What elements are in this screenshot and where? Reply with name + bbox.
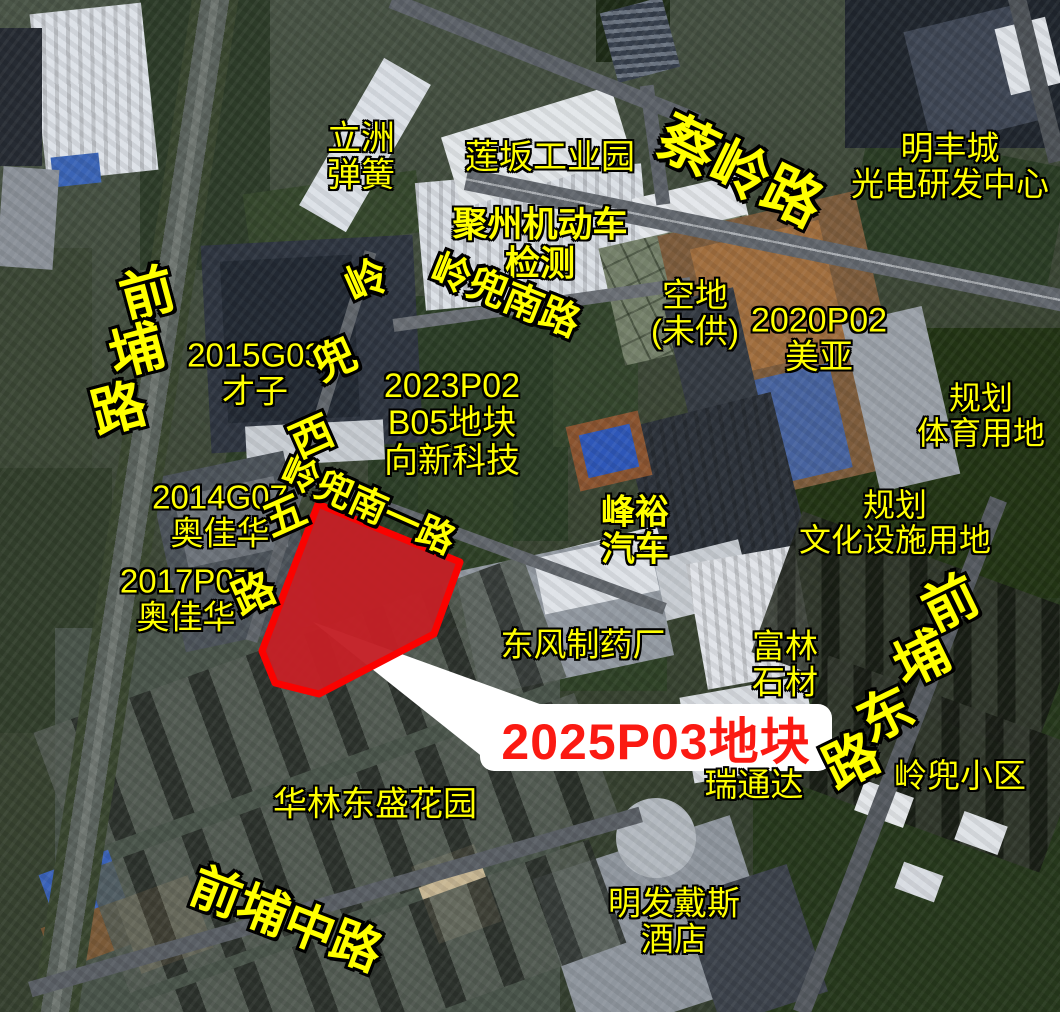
label-planned-sports-land: 规划体育用地 — [917, 381, 1045, 451]
label-road-qianpu-char-2: 路 — [85, 374, 153, 445]
label-2020p02-meiya: 2020P02美亚 — [751, 303, 887, 378]
label-ruitongda: 瑞通达 — [705, 767, 804, 803]
label-lingdou-residential: 岭兜小区 — [894, 758, 1026, 794]
label-road-qianpu-middle: 前埔中路 — [183, 858, 389, 981]
label-2017p07-aojiahua: 2017P07奥佳华 — [120, 564, 252, 637]
label-kongdi-weigong: 空地(未供) — [651, 278, 739, 351]
label-lizhou-tanhuang: 立洲弹簧 — [327, 121, 395, 196]
label-2015g03-caizi: 2015G03才子 — [187, 338, 323, 411]
label-road-lingdou-west-5th-char-0: 岭 — [338, 251, 395, 310]
label-mingfengcheng-rd-center: 明丰城光电研发中心 — [851, 131, 1049, 204]
label-planned-cultural-facility-land: 规划文化设施用地 — [799, 488, 991, 558]
satellite-map: 2025P03地块 立洲弹簧莲坂工业园明丰城光电研发中心聚州机动车检测空地(未供… — [0, 0, 1060, 1012]
label-mingfa-days-hotel: 明发戴斯酒店 — [608, 886, 740, 959]
label-hualin-dongsheng-garden: 华林东盛花园 — [273, 786, 477, 823]
label-road-cailing: 蔡岭路 — [648, 105, 832, 239]
label-fengyu-auto: 峰裕汽车 — [601, 495, 669, 570]
label-2023p02-b05-xiangxin: 2023P02B05地块向新科技 — [384, 368, 520, 480]
label-dongfeng-pharma: 东风制药厂 — [501, 627, 666, 663]
label-fulin-stone: 富林石材 — [752, 629, 818, 702]
label-lianban-industrial-park: 莲坂工业园 — [465, 139, 635, 176]
labels-layer: 立洲弹簧莲坂工业园明丰城光电研发中心聚州机动车检测空地(未供)2020P02美亚… — [0, 0, 1060, 1012]
